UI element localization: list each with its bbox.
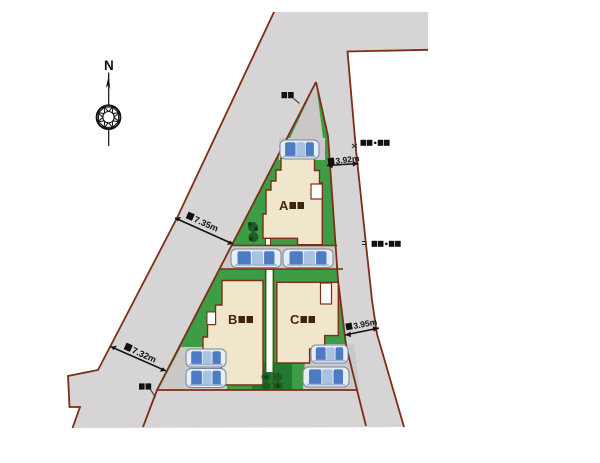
svg-text:A: A [279, 198, 289, 213]
svg-text:C: C [290, 312, 300, 327]
svg-text:N: N [104, 58, 114, 73]
svg-text:B: B [228, 312, 237, 327]
